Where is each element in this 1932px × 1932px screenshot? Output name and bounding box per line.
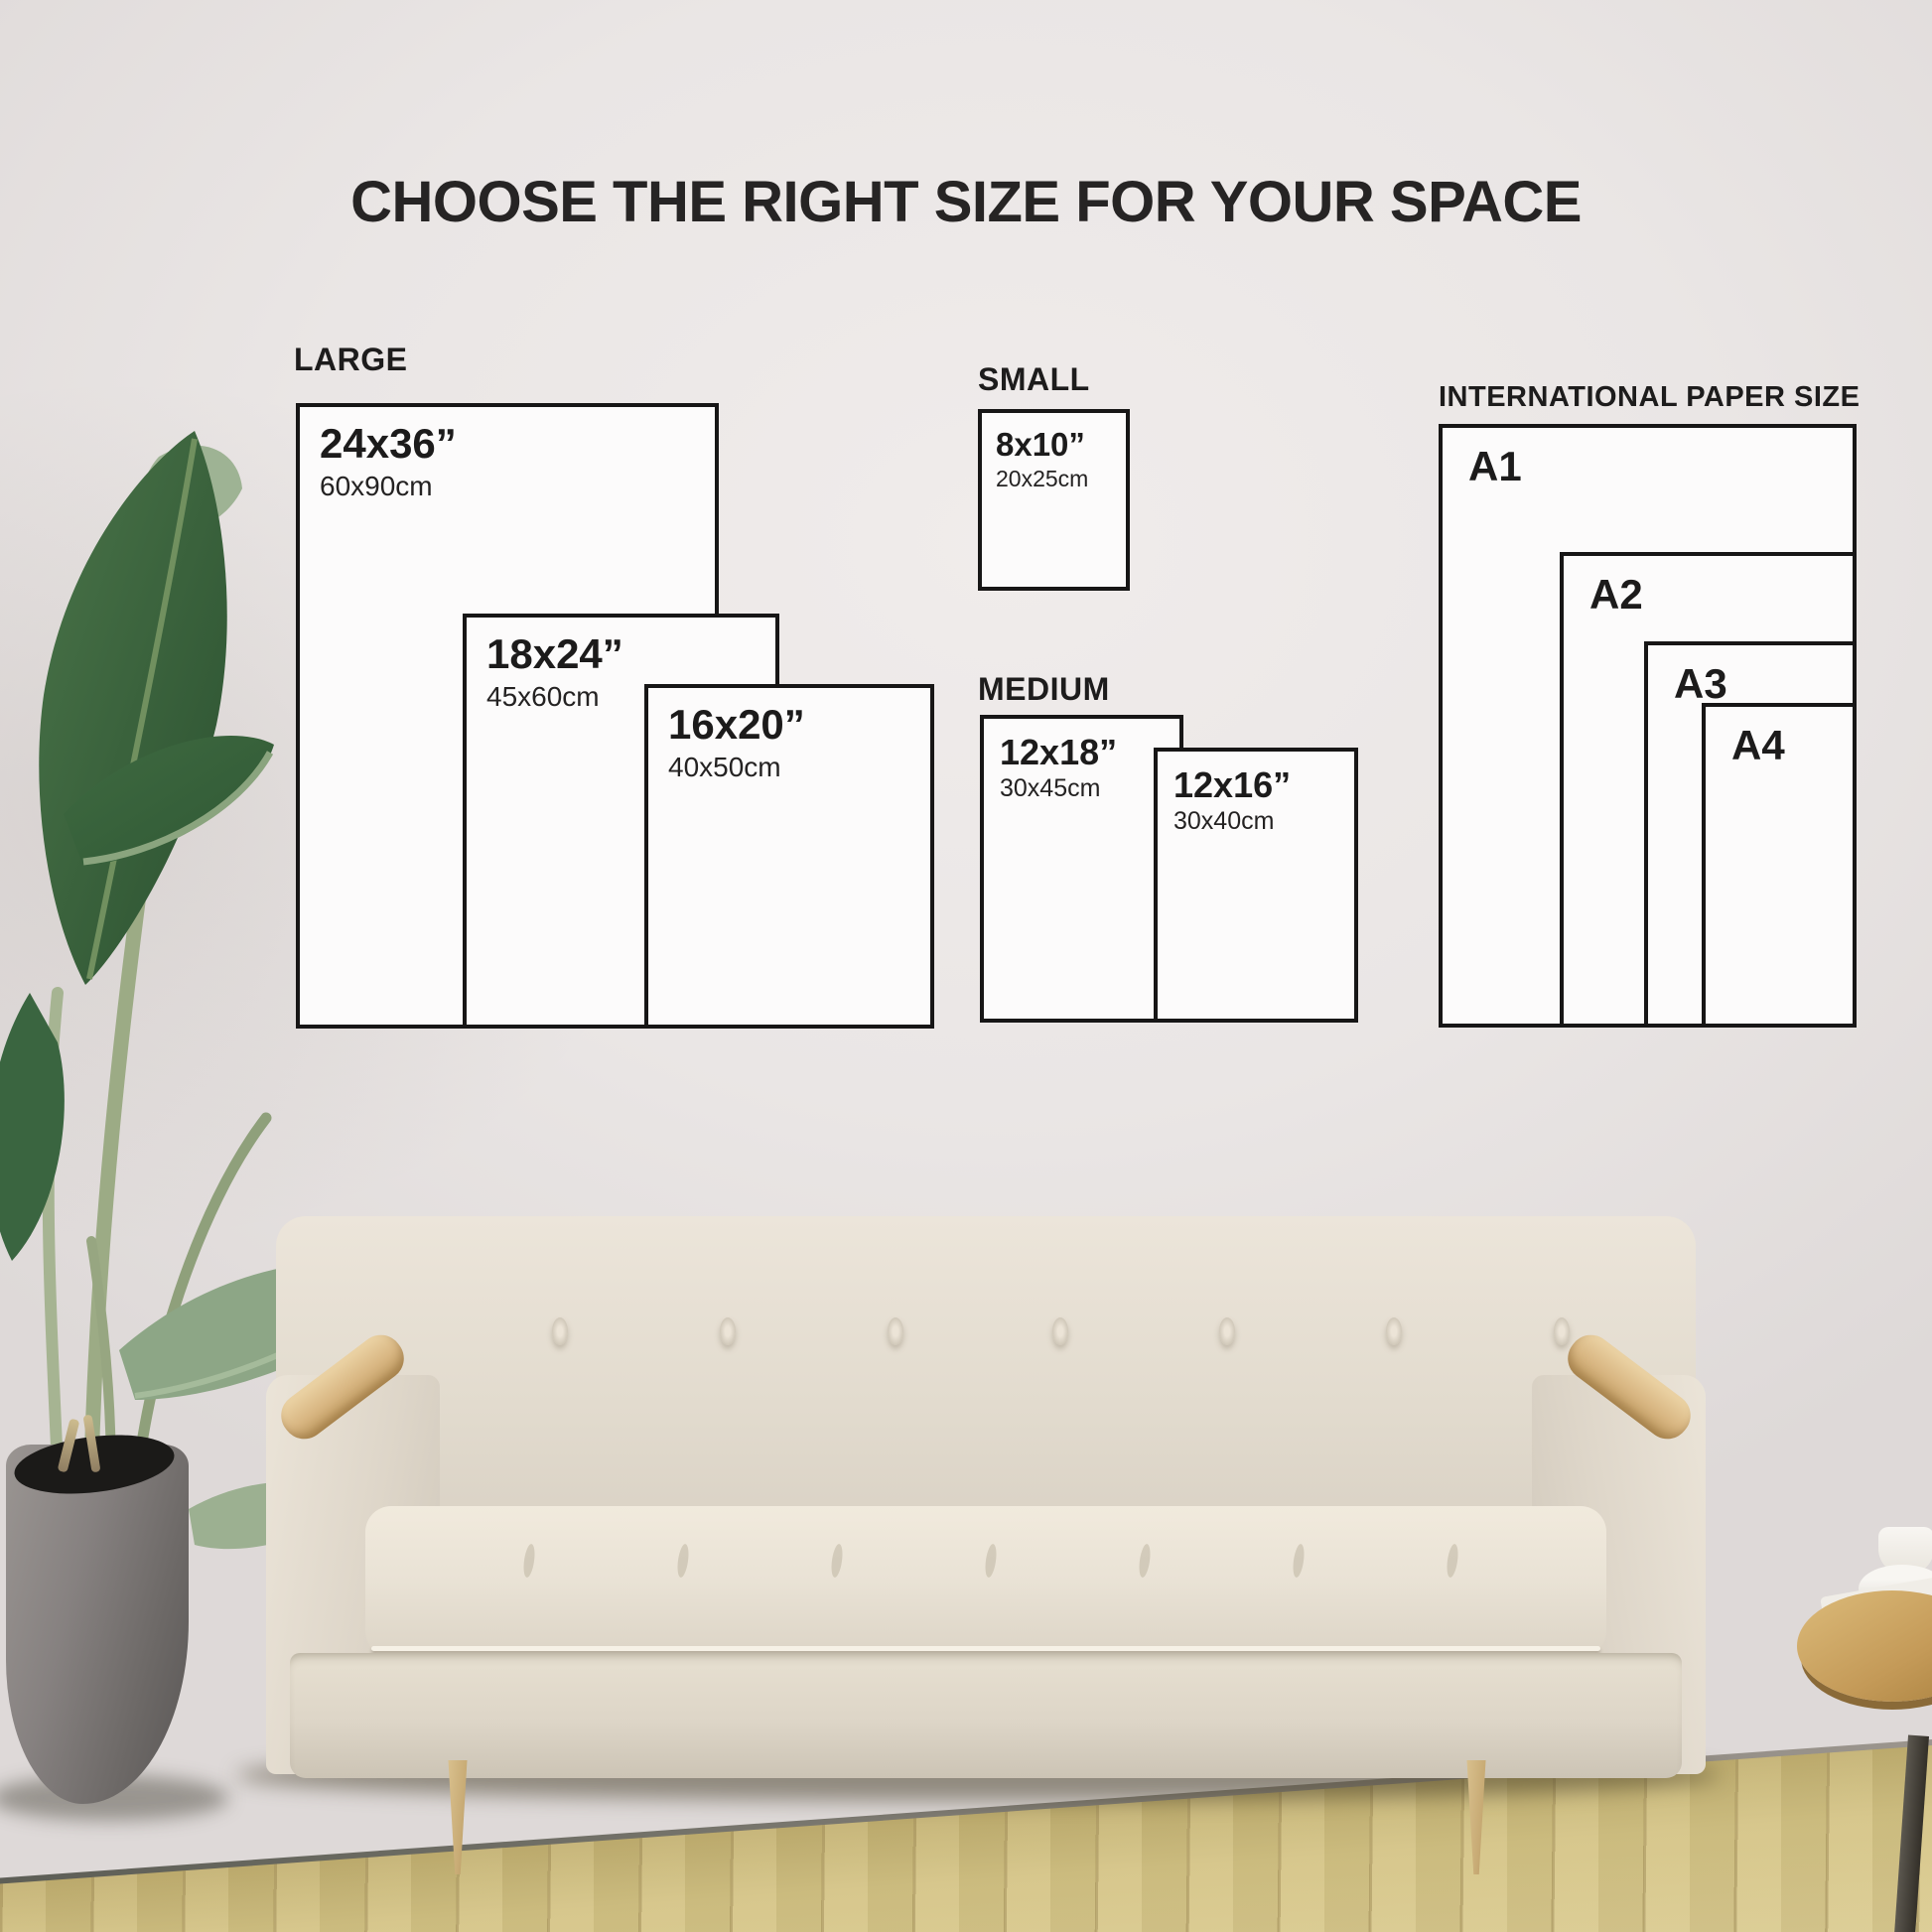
size-inches: 12x18”: [1000, 731, 1172, 773]
sofa-base: [290, 1653, 1682, 1778]
size-cm: 30x45cm: [1000, 773, 1172, 804]
paper-size-name: A2: [1584, 568, 1845, 618]
tufting-button: [1386, 1317, 1402, 1345]
sofa: [266, 1216, 1706, 1772]
tufting-button: [888, 1317, 903, 1345]
group-label-large: LARGE: [294, 342, 408, 378]
size-box-12x16: 12x16” 30x40cm: [1154, 748, 1358, 1023]
paper-size-name: A3: [1668, 657, 1845, 707]
poster-size-guide-scene: CHOOSE THE RIGHT SIZE FOR YOUR SPACE LAR…: [0, 0, 1932, 1932]
tufting-button: [1219, 1317, 1235, 1345]
size-box-16x20: 16x20” 40x50cm: [644, 684, 934, 1029]
tufting-button: [720, 1317, 736, 1345]
size-inches: 8x10”: [996, 425, 1118, 465]
group-label-small: SMALL: [978, 361, 1090, 398]
size-box-a4: A4: [1702, 703, 1857, 1028]
size-inches: 16x20”: [668, 700, 922, 750]
group-label-medium: MEDIUM: [978, 671, 1110, 708]
side-table: [1839, 1541, 1932, 1932]
size-cm: 30x40cm: [1173, 806, 1346, 837]
size-box-8x10: 8x10” 20x25cm: [978, 409, 1130, 591]
size-inches: 12x16”: [1173, 763, 1346, 806]
size-cm: 20x25cm: [996, 465, 1118, 493]
size-cm: 40x50cm: [668, 750, 922, 784]
group-label-international: INTERNATIONAL PAPER SIZE: [1439, 381, 1860, 414]
tufting-button: [1554, 1317, 1570, 1345]
size-inches: 18x24”: [486, 629, 767, 679]
paper-size-name: A1: [1462, 440, 1845, 489]
page-title: CHOOSE THE RIGHT SIZE FOR YOUR SPACE: [0, 169, 1932, 235]
seat-cushion: [365, 1506, 1606, 1657]
table-leg: [1892, 1735, 1929, 1932]
tufting-button: [1052, 1317, 1068, 1345]
tufting-button: [552, 1317, 568, 1345]
paper-size-name: A4: [1725, 719, 1845, 768]
